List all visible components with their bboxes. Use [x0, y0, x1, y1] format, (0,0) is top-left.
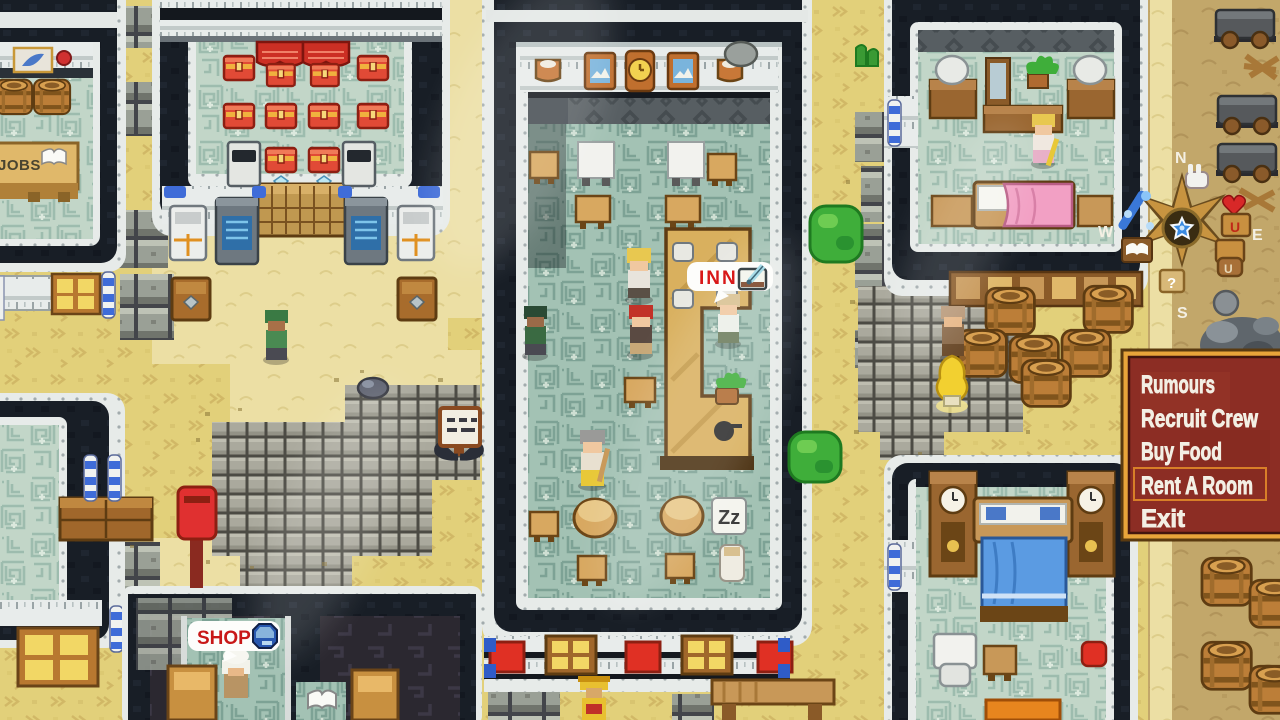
svg-text:SHOP: SHOP — [197, 628, 251, 649]
svg-text:Rumours: Rumours — [1141, 371, 1215, 399]
svg-text:?: ? — [1167, 275, 1176, 292]
svg-text:Rent A Room: Rent A Room — [1141, 472, 1253, 500]
svg-text:N: N — [1175, 150, 1187, 167]
svg-text:INN: INN — [699, 268, 738, 289]
svg-text:JOBS: JOBS — [0, 157, 41, 174]
svg-text:E: E — [1252, 227, 1263, 244]
svg-text:Exit: Exit — [1141, 505, 1186, 533]
svg-text:Zz: Zz — [718, 507, 740, 529]
svg-text:Buy Food: Buy Food — [1141, 438, 1222, 466]
svg-text:W: W — [1098, 224, 1114, 241]
svg-text:U: U — [1224, 262, 1233, 276]
svg-text:Recruit Crew: Recruit Crew — [1141, 405, 1258, 433]
svg-text:S: S — [1177, 305, 1188, 322]
svg-text:U: U — [1230, 219, 1240, 235]
